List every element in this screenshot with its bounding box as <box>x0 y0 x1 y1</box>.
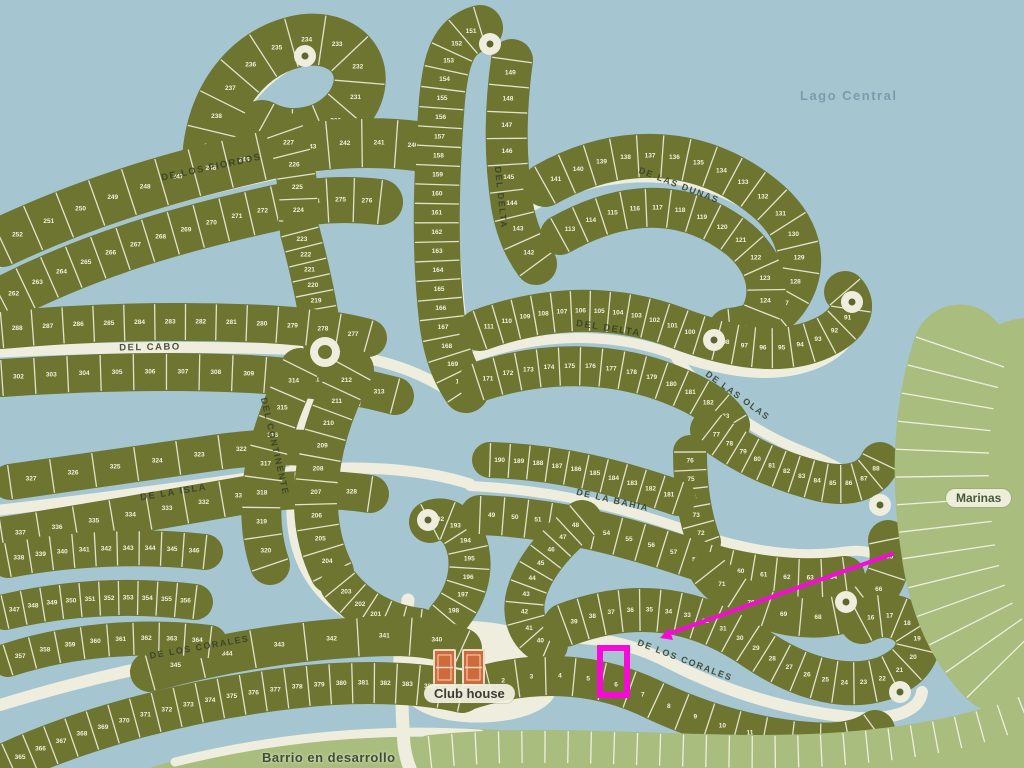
lot-number: 349 <box>47 600 58 607</box>
club-house-label: Club house <box>424 684 515 703</box>
lot-number: 120 <box>717 224 728 231</box>
lot-number: 283 <box>165 319 176 326</box>
lot-number: 84 <box>814 477 822 484</box>
lot-number: 326 <box>68 469 79 476</box>
lot-number: 181 <box>663 491 674 498</box>
lot-number: 248 <box>140 183 151 190</box>
lot-number: 318 <box>257 489 268 496</box>
lot-number: 222 <box>300 251 311 258</box>
lot-number: 139 <box>596 159 607 166</box>
lot-number: 223 <box>297 236 308 243</box>
lot-divider <box>568 731 569 763</box>
lot-number: 226 <box>289 162 300 169</box>
lot-number: 350 <box>66 597 77 604</box>
lot-number: 117 <box>652 204 663 211</box>
lot-number: 68 <box>814 614 822 621</box>
lot-number: 167 <box>438 324 449 331</box>
lot-number: 8 <box>667 703 671 710</box>
lot-number: 116 <box>630 205 641 212</box>
lot-divider <box>415 203 459 204</box>
lot-number: 95 <box>778 344 786 351</box>
lot-number: 110 <box>502 318 513 325</box>
lot-divider <box>362 119 363 167</box>
lot-divider <box>729 736 730 768</box>
lot-number: 375 <box>226 693 237 700</box>
lot-number: 193 <box>450 522 461 529</box>
lot-number: 55 <box>625 536 633 543</box>
lot-number: 346 <box>189 547 200 554</box>
lot-number: 164 <box>433 267 444 274</box>
lot-divider <box>118 581 119 615</box>
lot-number: 288 <box>12 325 23 332</box>
lot-number: 355 <box>161 596 172 603</box>
lot-number: 134 <box>716 168 727 175</box>
lot-number: 383 <box>402 681 413 688</box>
lot-number: 101 <box>667 323 678 330</box>
lot-number: 307 <box>178 369 189 376</box>
lot-number: 160 <box>432 191 443 198</box>
cul-de-sac-center <box>711 337 718 344</box>
lot-number: 334 <box>125 512 136 519</box>
lot-number: 123 <box>760 275 771 282</box>
lot-number: 338 <box>13 555 24 562</box>
lot-number: 370 <box>119 718 130 725</box>
lot-number: 18 <box>904 620 912 627</box>
lot-number: 172 <box>503 370 514 377</box>
lot-number: 36 <box>627 607 635 614</box>
lot-number: 148 <box>503 96 514 103</box>
lot-number: 313 <box>374 388 385 395</box>
lot-number: 142 <box>523 250 534 257</box>
lot-number: 308 <box>210 369 221 376</box>
lot-number: 315 <box>277 405 288 412</box>
lot-number: 21 <box>896 667 904 674</box>
lot-number: 366 <box>35 746 46 753</box>
lot-number: 279 <box>287 322 298 329</box>
lot-number: 198 <box>448 607 459 614</box>
lot-number: 333 <box>162 505 173 512</box>
lot-number: 281 <box>226 319 237 326</box>
lot-number: 37 <box>608 609 616 616</box>
lot-number: 363 <box>166 636 177 643</box>
lot-number: 94 <box>797 342 805 349</box>
lot-number: 104 <box>613 309 624 316</box>
lot-number: 75 <box>687 476 695 483</box>
lot-divider <box>137 581 138 615</box>
lot-number: 132 <box>758 193 769 200</box>
lot-number: 272 <box>257 207 268 214</box>
lot-number: 220 <box>308 282 319 289</box>
lot-number: 280 <box>257 320 268 327</box>
lot-number: 174 <box>544 364 555 371</box>
lot-number: 278 <box>318 326 329 333</box>
lake-label: Lago Central <box>800 88 897 103</box>
lot-number: 286 <box>73 321 84 328</box>
lot-number: 71 <box>718 581 726 588</box>
lot-number: 232 <box>352 63 363 70</box>
lot-number: 219 <box>311 298 322 305</box>
lot-divider <box>747 290 785 291</box>
lot-number: 262 <box>8 291 19 298</box>
lot-number: 88 <box>872 465 880 472</box>
lot-number: 382 <box>380 680 391 687</box>
lot-number: 275 <box>335 197 346 204</box>
lot-divider <box>545 657 546 695</box>
lot-number: 28 <box>769 655 777 662</box>
lot-number: 26 <box>803 671 811 678</box>
lot-number: 227 <box>283 139 294 146</box>
lot-number: 335 <box>88 518 99 525</box>
lot-number: 182 <box>703 399 714 406</box>
lot-number: 186 <box>571 466 582 473</box>
lot-number: 341 <box>379 633 390 640</box>
lot-number: 303 <box>46 372 57 379</box>
lot-number: 241 <box>374 140 385 147</box>
lot-number: 336 <box>52 524 63 531</box>
lot-number: 362 <box>141 635 152 642</box>
lot-number: 344 <box>145 545 156 552</box>
cul-de-sac-center <box>425 517 432 524</box>
lot-number: 189 <box>513 458 524 465</box>
lot-number: 92 <box>831 327 839 334</box>
lot-number: 233 <box>332 41 343 48</box>
lot-number: 103 <box>631 313 642 320</box>
lot-number: 337 <box>15 530 26 537</box>
cul-de-sac-center <box>877 502 884 509</box>
lot-number: 237 <box>225 85 236 92</box>
lot-number: 57 <box>670 549 678 556</box>
lot-number: 320 <box>260 547 271 554</box>
lot-number: 149 <box>505 70 516 77</box>
lot-number: 131 <box>775 210 786 217</box>
cul-de-sac-center <box>302 53 309 60</box>
lot-number: 62 <box>783 574 791 581</box>
lot-number: 187 <box>552 463 563 470</box>
lot-number: 380 <box>336 680 347 687</box>
lot-number: 181 <box>685 389 696 396</box>
cul-de-sac-center <box>843 599 850 606</box>
lot-number: 29 <box>752 645 760 652</box>
lot-number: 314 <box>288 378 299 385</box>
lot-number: 353 <box>123 594 134 601</box>
lot-number: 144 <box>506 200 517 207</box>
lot-number: 277 <box>348 331 359 338</box>
lot-number: 119 <box>697 214 708 221</box>
lot-number: 263 <box>32 279 43 286</box>
lot-number: 348 <box>28 603 39 610</box>
lot-number: 212 <box>341 377 352 384</box>
lot-number: 322 <box>236 446 247 453</box>
lot-number: 265 <box>81 259 92 266</box>
lot-number: 115 <box>607 210 618 217</box>
lot-number: 138 <box>620 154 631 161</box>
lot-number: 16 <box>867 615 875 622</box>
lot-number: 49 <box>488 512 496 519</box>
lot-number: 162 <box>431 229 442 236</box>
lot-number: 141 <box>550 176 561 183</box>
lot-number: 361 <box>115 636 126 643</box>
lot-number: 176 <box>585 363 596 370</box>
lot-number: 210 <box>323 420 334 427</box>
lot-number: 122 <box>750 254 761 261</box>
lot-divider <box>591 732 592 764</box>
lot-number: 221 <box>304 267 315 274</box>
lot-number: 266 <box>105 250 116 257</box>
lot-number: 22 <box>879 675 887 682</box>
lot-number: 206 <box>311 512 322 519</box>
lot-number: 107 <box>557 308 568 315</box>
lot-number: 264 <box>56 269 67 276</box>
lot-number: 91 <box>844 314 852 321</box>
lot-number: 324 <box>152 457 163 464</box>
lot-number: 268 <box>155 233 166 240</box>
lot-number: 24 <box>841 679 849 686</box>
lot-number: 97 <box>741 343 749 350</box>
lot-number: 207 <box>311 489 322 496</box>
lot-number: 31 <box>719 626 727 633</box>
lot-number: 371 <box>140 712 151 719</box>
lot-divider <box>199 354 200 390</box>
lot-number: 66 <box>875 586 883 593</box>
lot-number: 252 <box>12 231 23 238</box>
lot-number: 109 <box>520 314 531 321</box>
lot-number: 143 <box>513 226 524 233</box>
lot-band-marinas-slips <box>942 352 1000 665</box>
lot-number: 343 <box>123 545 134 552</box>
cul-de-sac-center <box>487 41 494 48</box>
lot-number: 25 <box>822 677 830 684</box>
lot-number: 83 <box>798 473 806 480</box>
lot-number: 381 <box>358 680 369 687</box>
lot-number: 369 <box>98 724 109 731</box>
lot-number: 197 <box>457 591 468 598</box>
lot-number: 155 <box>437 95 448 102</box>
lot-number: 77 <box>713 431 721 438</box>
lot-number: 169 <box>447 361 458 368</box>
lot-number: 79 <box>740 448 748 455</box>
lot-number: 168 <box>441 343 452 350</box>
lot-number: 45 <box>537 560 545 567</box>
lot-number: 19 <box>914 636 922 643</box>
lot-number: 351 <box>85 596 96 603</box>
lot-number: 250 <box>75 205 86 212</box>
lot-number: 51 <box>534 517 542 524</box>
lot-number: 140 <box>573 166 584 173</box>
lot-number: 159 <box>432 171 443 178</box>
cul-de-sac-center <box>849 299 856 306</box>
lot-number: 171 <box>482 375 493 382</box>
lot-number: 5 <box>586 675 590 682</box>
lot-number: 185 <box>589 470 600 477</box>
lot-number: 357 <box>15 653 26 660</box>
lot-number: 177 <box>606 365 617 372</box>
lot-divider <box>640 589 641 631</box>
lot-number: 165 <box>434 286 445 293</box>
lot-number: 72 <box>697 530 705 537</box>
lot-number: 163 <box>432 248 443 255</box>
lot-number: 304 <box>79 370 90 377</box>
lot-number: 287 <box>42 323 53 330</box>
roundabout-island <box>318 345 332 359</box>
lot-number: 323 <box>194 451 205 458</box>
lot-number: 47 <box>559 534 567 541</box>
lot-number: 376 <box>248 690 259 697</box>
lot-number: 305 <box>112 369 123 376</box>
lot-number: 182 <box>645 485 656 492</box>
lot-number: 87 <box>860 475 868 482</box>
lot-number: 3 <box>530 673 534 680</box>
lot-number: 249 <box>107 194 118 201</box>
lot-number: 276 <box>361 197 372 204</box>
lot-number: 234 <box>301 36 312 43</box>
lot-number: 133 <box>738 179 749 186</box>
lot-number: 352 <box>104 595 115 602</box>
lot-number: 54 <box>603 530 611 537</box>
lot-number: 194 <box>460 538 471 545</box>
lot-number: 136 <box>669 154 680 161</box>
lot-number: 225 <box>292 184 303 191</box>
lot-number: 365 <box>15 754 26 761</box>
lot-number: 340 <box>57 548 68 555</box>
lot-number: 374 <box>205 697 216 704</box>
lot-number: 41 <box>525 625 533 632</box>
lot-number: 196 <box>463 574 474 581</box>
lot-number: 17 <box>886 613 894 620</box>
lot-number: 27 <box>786 664 794 671</box>
lot-number: 48 <box>572 522 580 529</box>
lot-number: 137 <box>645 152 656 159</box>
lot-number: 203 <box>341 589 352 596</box>
lot-number: 325 <box>110 463 121 470</box>
lot-number: 100 <box>685 329 696 336</box>
lot-number: 343 <box>274 642 285 649</box>
lot-number: 242 <box>340 140 351 147</box>
lot-number: 76 <box>686 458 694 465</box>
lot-number: 7 <box>641 691 645 698</box>
lot-number: 368 <box>77 731 88 738</box>
lot-number: 347 <box>9 606 20 613</box>
lot-number: 6 <box>614 682 618 689</box>
lot-number: 154 <box>439 76 450 83</box>
lot-number: 341 <box>79 547 90 554</box>
lot-number: 238 <box>211 113 222 120</box>
lot-divider <box>415 241 459 242</box>
lot-number: 202 <box>355 601 366 608</box>
lot-number: 10 <box>719 722 727 729</box>
marinas-label: Marinas <box>946 489 1011 507</box>
lot-number: 108 <box>538 310 549 317</box>
lot-number: 209 <box>317 443 328 450</box>
lot-number: 190 <box>494 457 505 464</box>
lot-number: 231 <box>350 94 361 101</box>
lot-number: 358 <box>40 646 51 653</box>
lot-number: 9 <box>693 713 697 720</box>
lot-number: 96 <box>759 344 767 351</box>
lot-number: 80 <box>754 456 762 463</box>
lot-divider <box>854 662 855 704</box>
lot-number: 85 <box>829 480 837 487</box>
lot-number: 319 <box>256 519 267 526</box>
lot-number: 282 <box>195 319 206 326</box>
lot-number: 235 <box>271 45 282 52</box>
map-canvas: 2392382372362352342332322312302292282522… <box>0 0 1024 768</box>
lot-number: 367 <box>56 738 67 745</box>
lot-number: 251 <box>43 218 54 225</box>
lot-number: 205 <box>315 535 326 542</box>
lot-number: 284 <box>134 319 145 326</box>
lot-number: 152 <box>451 40 462 47</box>
lot-divider <box>706 735 707 767</box>
lot-number: 378 <box>292 684 303 691</box>
lot-number: 340 <box>431 637 442 644</box>
cul-de-sac-center <box>897 689 904 696</box>
lot-number: 129 <box>794 255 805 262</box>
lot-number: 339 <box>35 551 46 558</box>
lot-number: 33 <box>684 612 692 619</box>
lot-number: 73 <box>693 512 701 519</box>
lot-number: 113 <box>565 226 576 233</box>
lot-number: 121 <box>735 237 746 244</box>
lot-number: 183 <box>627 480 638 487</box>
lot-number: 269 <box>181 226 192 233</box>
lot-number: 309 <box>243 370 254 377</box>
lot-number: 267 <box>130 241 141 248</box>
lot-number: 86 <box>845 480 853 487</box>
lot-number: 4 <box>558 673 562 680</box>
lot-number: 208 <box>313 466 324 473</box>
lot-number: 42 <box>521 608 529 615</box>
lot-number: 360 <box>90 638 101 645</box>
lot-number: 106 <box>575 307 586 314</box>
lot-number: 46 <box>548 546 556 553</box>
lot-number: 69 <box>780 611 788 618</box>
lot-number: 105 <box>594 308 605 315</box>
lot-number: 39 <box>570 618 578 625</box>
lot-number: 377 <box>270 686 281 693</box>
lot-number: 130 <box>788 231 799 238</box>
lot-number: 20 <box>910 654 918 661</box>
lot-divider <box>580 347 581 385</box>
barrio-en-desarrollo-label: Barrio en desarrollo <box>262 750 396 765</box>
lot-number: 345 <box>167 546 178 553</box>
lot-number: 128 <box>790 279 801 286</box>
lot-number: 306 <box>145 368 156 375</box>
lot-number: 166 <box>435 305 446 312</box>
lot-number: 124 <box>760 298 771 305</box>
lot-number: 236 <box>245 61 256 68</box>
lot-number: 102 <box>649 317 660 324</box>
lot-number: 184 <box>608 475 619 482</box>
lot-number: 114 <box>586 217 597 224</box>
lot-number: 359 <box>65 642 76 649</box>
lot-number: 61 <box>760 572 768 579</box>
lot-number: 93 <box>814 336 822 343</box>
lot-number: 345 <box>170 662 181 669</box>
lot-number: 156 <box>435 114 446 121</box>
lot-number: 56 <box>648 542 656 549</box>
lot-number: 78 <box>726 440 734 447</box>
lot-number: 195 <box>464 555 475 562</box>
lot-number: 135 <box>693 159 704 166</box>
lot-number: 188 <box>533 460 544 467</box>
lot-number: 180 <box>666 381 677 388</box>
lot-number: 211 <box>331 398 342 405</box>
lot-number: 271 <box>232 213 243 220</box>
lot-number: 342 <box>326 636 337 643</box>
development-map: 2392382372362352342332322312302292282522… <box>0 0 1024 768</box>
lot-number: 379 <box>314 682 325 689</box>
lot-number: 317 <box>260 460 271 467</box>
